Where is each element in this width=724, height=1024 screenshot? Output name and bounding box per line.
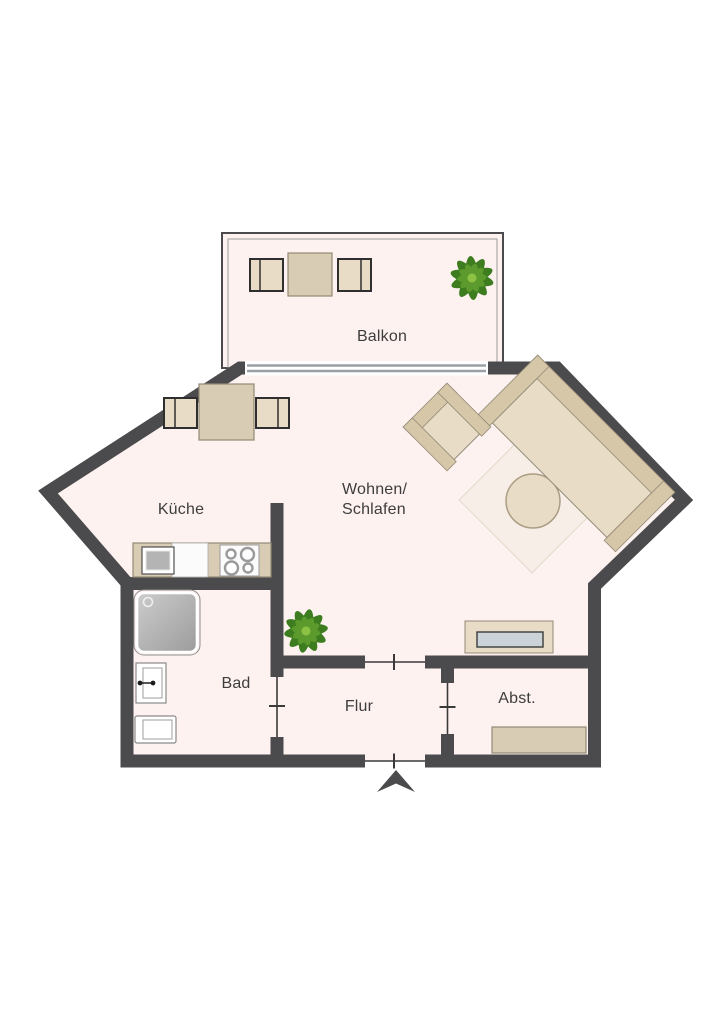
faucet-dot-1 (138, 681, 143, 686)
entrance-door (365, 754, 425, 793)
counter-appliance (172, 543, 208, 577)
balcony-door-opening (245, 361, 488, 376)
label-balkon: Balkon (357, 328, 407, 346)
label-abst: Abst. (498, 690, 535, 708)
balcony-outline (222, 233, 503, 368)
faucet-dot-2 (151, 681, 156, 686)
kitchen-counter (133, 543, 271, 577)
dining-chair-right (256, 398, 289, 428)
storage-cabinet (492, 727, 586, 753)
entrance-arrow-icon (377, 770, 415, 792)
label-kueche: Küche (158, 501, 204, 519)
label-wohnen-schlafen: Wohnen/ Schlafen (342, 480, 407, 520)
sideboard (465, 621, 553, 653)
label-wohnen-line1: Wohnen/ (342, 480, 407, 500)
stove-burner-1 (227, 550, 236, 559)
stove-burner-2 (241, 548, 254, 561)
balcony-sliding-door (245, 361, 488, 376)
balcony-table (288, 253, 332, 296)
dining-table (199, 384, 254, 440)
dining-chair-left (164, 398, 197, 428)
balcony-chair-left (250, 259, 283, 291)
label-bad: Bad (221, 675, 250, 693)
floor-plan: Balkon Küche Wohnen/ Schlafen Bad Flur A… (0, 0, 724, 1024)
balcony-furniture (250, 253, 371, 296)
balcony (222, 233, 503, 368)
kitchen-sink-basin (146, 551, 170, 570)
toilet-bowl (143, 720, 172, 739)
label-flur: Flur (345, 698, 373, 716)
stove-burner-4 (244, 564, 253, 573)
shower (137, 593, 197, 652)
balcony-chair-right (338, 259, 371, 291)
stove-burner-3 (225, 562, 238, 575)
label-schlafen-line2: Schlafen (342, 500, 407, 520)
sideboard-inset (477, 632, 543, 647)
